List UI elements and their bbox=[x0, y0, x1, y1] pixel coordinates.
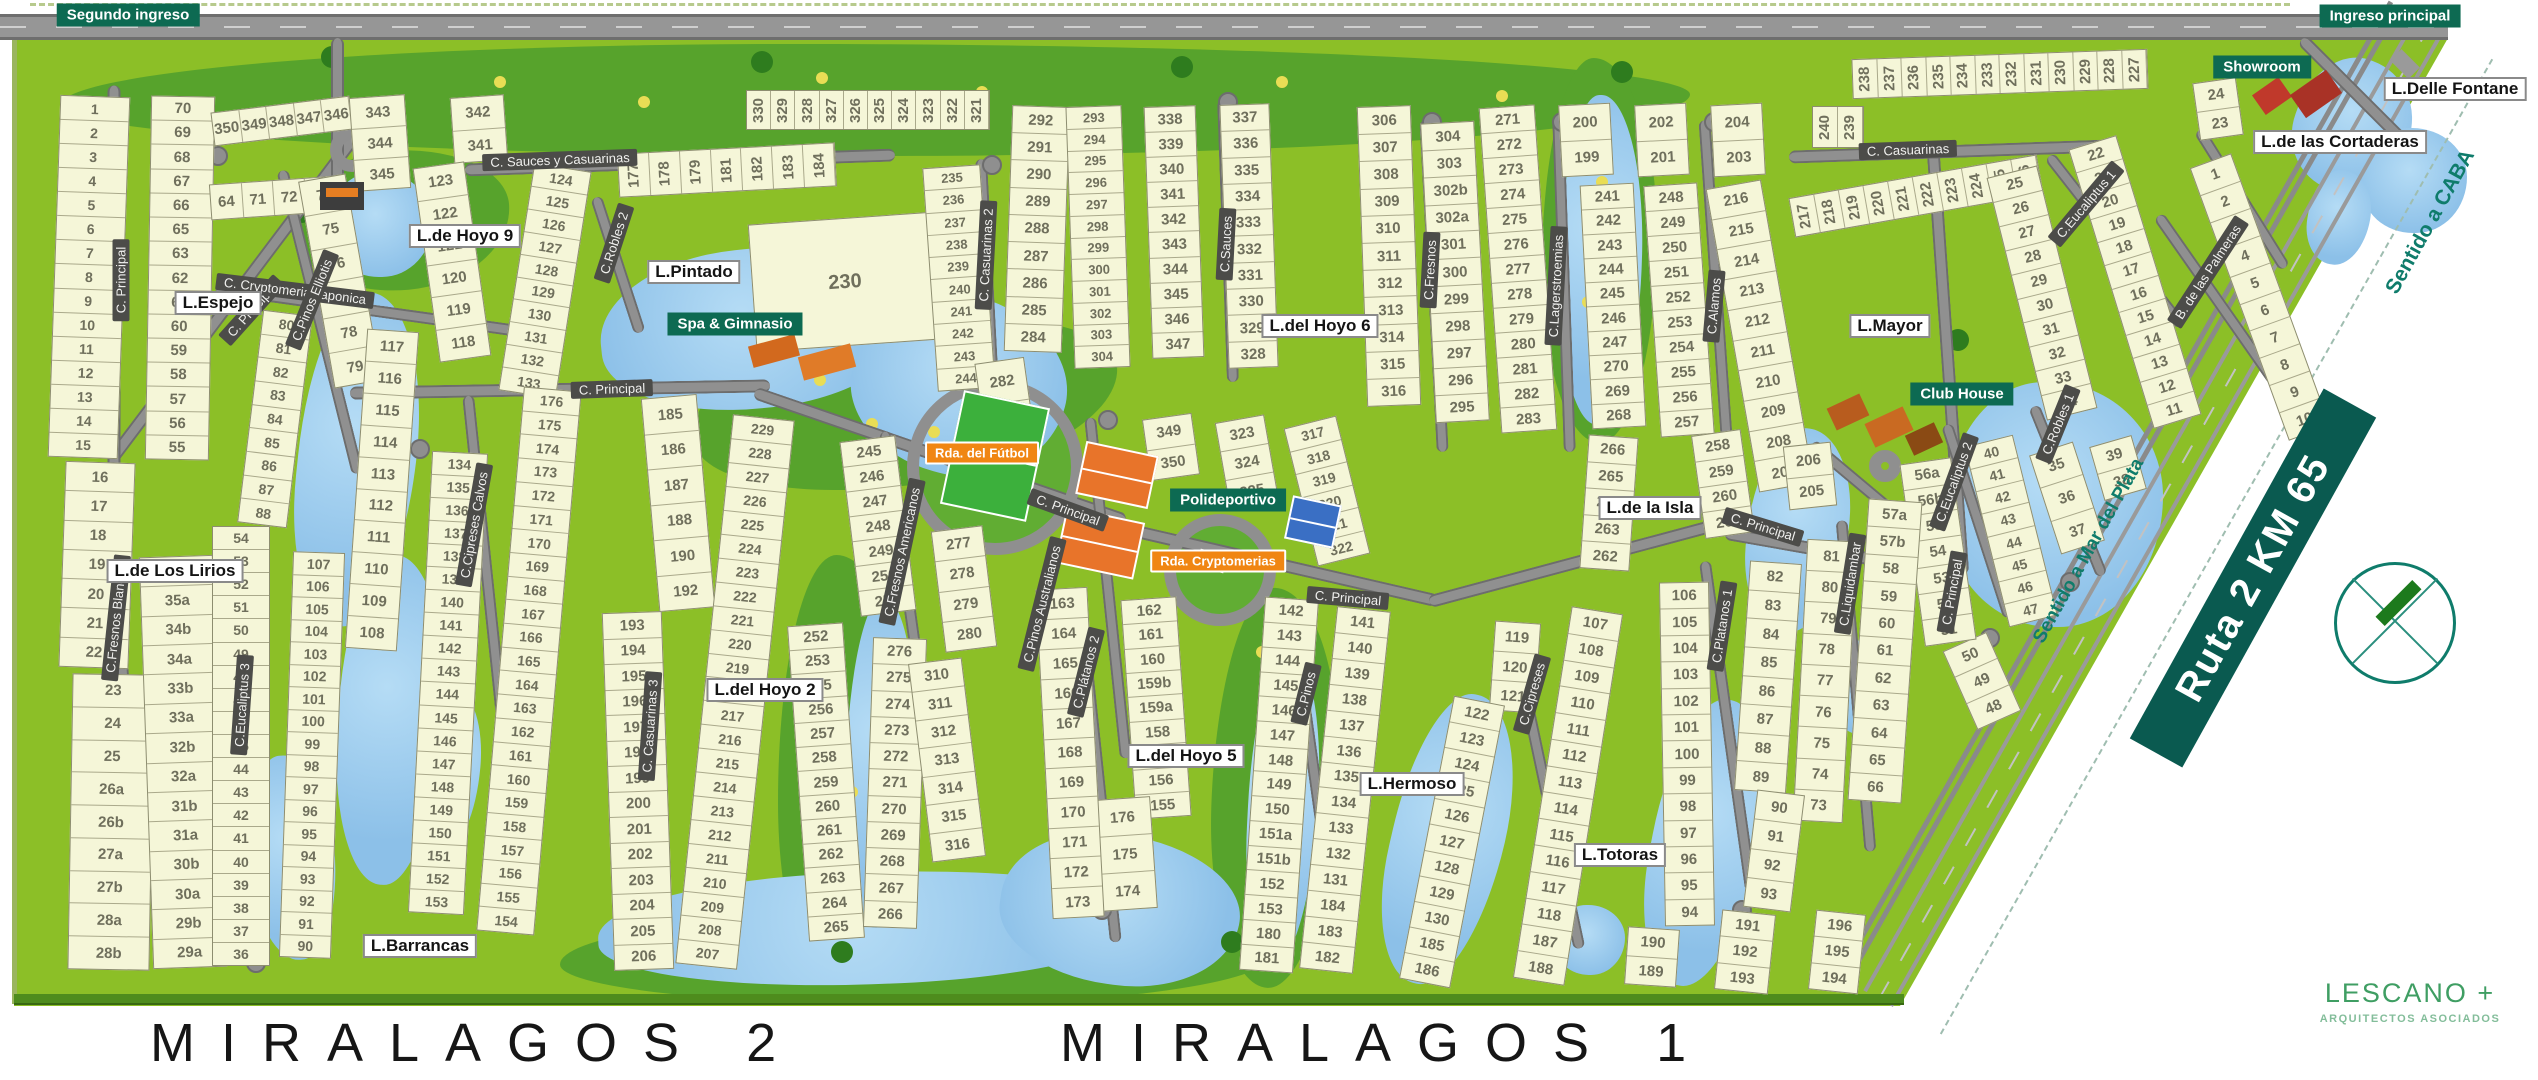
lot-262: 262 bbox=[1580, 542, 1630, 571]
lot-70: 70 bbox=[152, 96, 214, 121]
lot-142: 142 bbox=[422, 636, 477, 662]
lot-62: 62 bbox=[1856, 663, 1910, 694]
lot-143: 143 bbox=[1263, 622, 1317, 650]
lot-203: 203 bbox=[1713, 139, 1765, 176]
map-bottom-boundary bbox=[14, 994, 1904, 1005]
lot-270: 270 bbox=[1590, 354, 1643, 381]
lot-283: 283 bbox=[1501, 405, 1557, 433]
lake-label: L.Mayor bbox=[1849, 314, 1930, 338]
lot-109: 109 bbox=[348, 584, 400, 619]
lot-strip: 1931941951961971981992002012022032042052… bbox=[602, 611, 674, 971]
lot-324: 324 bbox=[892, 91, 916, 129]
poi-badge: Ingreso principal bbox=[2320, 5, 2461, 28]
lot-168: 168 bbox=[1044, 737, 1095, 769]
lot-286: 286 bbox=[1007, 269, 1064, 298]
lot-strip: 106105104103102101100999897969594 bbox=[1659, 582, 1715, 927]
lot-347: 347 bbox=[1153, 332, 1204, 358]
lot-279: 279 bbox=[1494, 305, 1550, 334]
lot-350: 350 bbox=[212, 110, 243, 145]
lot-100: 100 bbox=[288, 710, 339, 734]
lot-309: 309 bbox=[1361, 188, 1414, 217]
lot-strip: 1071061051041031021011009998979695949392… bbox=[279, 551, 345, 959]
lot-62: 62 bbox=[149, 266, 211, 291]
lot-114: 114 bbox=[359, 425, 411, 460]
lot-183: 183 bbox=[772, 145, 805, 189]
lot-171: 171 bbox=[1049, 827, 1100, 859]
lot-343: 343 bbox=[350, 95, 406, 130]
compass-icon bbox=[2334, 562, 2456, 684]
lot-strip: 8283848586878889 bbox=[1734, 560, 1802, 793]
lot-338: 338 bbox=[1145, 106, 1196, 133]
lot-348: 348 bbox=[266, 103, 297, 138]
lot-94: 94 bbox=[1666, 899, 1714, 925]
map-left-boundary bbox=[12, 38, 17, 1004]
lot-228: 228 bbox=[2097, 51, 2123, 90]
lot-82: 82 bbox=[1749, 562, 1801, 594]
lot-149: 149 bbox=[414, 797, 469, 823]
lot-strip: 202201 bbox=[1634, 103, 1690, 178]
lot-202: 202 bbox=[611, 841, 670, 869]
lot-68: 68 bbox=[151, 145, 213, 170]
lot-115: 115 bbox=[361, 393, 413, 428]
lot-59: 59 bbox=[148, 338, 210, 363]
lot-strip: 306307308309310311312313314315316 bbox=[1357, 105, 1421, 407]
lot-27a: 27a bbox=[70, 838, 151, 872]
poi-badge: Polideportivo bbox=[1170, 489, 1286, 512]
amenity-bld bbox=[1827, 394, 1870, 431]
lot-102: 102 bbox=[1662, 688, 1710, 715]
golf-bunker bbox=[638, 96, 650, 108]
lot-55: 55 bbox=[146, 435, 208, 459]
lot-268: 268 bbox=[866, 848, 919, 876]
lot-315: 315 bbox=[1366, 351, 1419, 380]
lot-330: 330 bbox=[747, 91, 771, 129]
lot-87: 87 bbox=[1739, 704, 1791, 736]
lot-271: 271 bbox=[1480, 106, 1536, 135]
lot-84: 84 bbox=[1745, 619, 1797, 651]
lot-152: 152 bbox=[410, 866, 465, 892]
lot-102: 102 bbox=[289, 665, 340, 689]
lot-60: 60 bbox=[1860, 609, 1914, 640]
poi-badge: Segundo ingreso bbox=[57, 4, 200, 27]
lot-342: 342 bbox=[1148, 207, 1199, 234]
lot-303: 303 bbox=[1423, 149, 1476, 179]
lot-207: 207 bbox=[676, 939, 738, 968]
lot-302: 302 bbox=[1073, 302, 1128, 326]
lot-103: 103 bbox=[290, 642, 341, 666]
lot-56: 56 bbox=[146, 411, 208, 436]
lot-255: 255 bbox=[1657, 359, 1711, 388]
lot-strip: 293294295296297298299300301302303304 bbox=[1065, 105, 1130, 369]
lot-10: 10 bbox=[53, 312, 122, 338]
lot-189: 189 bbox=[1625, 956, 1677, 987]
lot-93: 93 bbox=[1744, 878, 1793, 912]
lot-190: 190 bbox=[1627, 927, 1679, 959]
lot-328: 328 bbox=[795, 91, 819, 129]
lot-38: 38 bbox=[213, 897, 269, 920]
lot-310: 310 bbox=[1362, 215, 1415, 244]
lot-60: 60 bbox=[148, 314, 210, 339]
lot-146: 146 bbox=[417, 728, 472, 754]
lot-342: 342 bbox=[451, 95, 505, 131]
lot-140: 140 bbox=[425, 590, 480, 616]
lescano-subtitle: ARQUITECTOS ASOCIADOS bbox=[2310, 1013, 2510, 1025]
lake-label: L.del Hoyo 6 bbox=[1261, 314, 1378, 338]
lot-257: 257 bbox=[1660, 409, 1714, 437]
lot-119: 119 bbox=[1494, 622, 1540, 655]
lot-307: 307 bbox=[1359, 133, 1412, 162]
road-centerline bbox=[0, 26, 2448, 28]
lot-186: 186 bbox=[645, 430, 702, 470]
lot-143: 143 bbox=[421, 659, 476, 685]
lot-33a: 33a bbox=[145, 703, 218, 735]
lot-206: 206 bbox=[1784, 443, 1833, 479]
lot-strip: 292291290289288287286285284 bbox=[1004, 105, 1071, 353]
lot-76: 76 bbox=[1799, 696, 1849, 730]
lot-108: 108 bbox=[346, 616, 398, 650]
title-miralagos-1: MIRALAGOS 1 bbox=[1060, 1012, 1712, 1074]
cul-de-sac bbox=[410, 439, 430, 459]
lot-193: 193 bbox=[1715, 963, 1769, 994]
lot-35a: 35a bbox=[141, 585, 214, 617]
lot-230: 230 bbox=[2048, 52, 2074, 91]
lot-57b: 57b bbox=[1866, 527, 1920, 558]
lot-290: 290 bbox=[1010, 161, 1067, 190]
lot-1: 1 bbox=[60, 96, 129, 122]
lot-242: 242 bbox=[1582, 208, 1635, 235]
lot-199: 199 bbox=[1561, 139, 1613, 176]
lake-label: L.Barrancas bbox=[363, 934, 477, 958]
lot-40: 40 bbox=[213, 851, 269, 874]
lot-169: 169 bbox=[1046, 767, 1097, 799]
lot-301: 301 bbox=[1073, 280, 1128, 304]
lot-61: 61 bbox=[1858, 636, 1912, 667]
lot-34b: 34b bbox=[142, 615, 215, 647]
lot-116: 116 bbox=[364, 361, 416, 396]
lot-266: 266 bbox=[864, 901, 917, 928]
lot-296: 296 bbox=[1069, 171, 1124, 195]
lot-200: 200 bbox=[1559, 104, 1611, 142]
lot-16: 16 bbox=[66, 462, 135, 494]
lake-label: L.Pintado bbox=[647, 260, 740, 284]
lot-244: 244 bbox=[1585, 257, 1638, 284]
lot-328: 328 bbox=[1229, 341, 1278, 368]
lot-144: 144 bbox=[420, 682, 475, 708]
lot-236: 236 bbox=[1901, 58, 1927, 97]
lot-118: 118 bbox=[436, 323, 490, 361]
lot-12: 12 bbox=[51, 360, 120, 386]
lot-86: 86 bbox=[1741, 676, 1793, 708]
lot-strip: 240239 bbox=[1812, 106, 1864, 148]
lot-150: 150 bbox=[413, 820, 468, 846]
lot-270: 270 bbox=[868, 796, 921, 824]
lot-39: 39 bbox=[213, 874, 269, 897]
lot-249: 249 bbox=[1646, 209, 1700, 238]
lot-150: 150 bbox=[1250, 796, 1304, 824]
lot-231: 231 bbox=[2024, 53, 2050, 92]
lot-304: 304 bbox=[1421, 122, 1474, 152]
lot-265: 265 bbox=[1586, 462, 1636, 492]
lot-13: 13 bbox=[50, 384, 119, 410]
lot-181: 181 bbox=[1240, 945, 1294, 972]
lot-110: 110 bbox=[350, 552, 402, 587]
lot-11: 11 bbox=[52, 336, 121, 362]
amenity-bld bbox=[1864, 406, 1913, 447]
lot-54: 54 bbox=[213, 527, 269, 550]
lot-strip: 124125126127128129130131132133 bbox=[498, 163, 591, 399]
lake-label: L.de la Isla bbox=[1599, 496, 1702, 520]
lot-105: 105 bbox=[292, 597, 343, 621]
lot-269: 269 bbox=[867, 822, 920, 850]
lot-202: 202 bbox=[1635, 104, 1687, 142]
lot-33b: 33b bbox=[144, 673, 217, 705]
lot-24: 24 bbox=[72, 707, 153, 741]
lot-strip: 200199 bbox=[1558, 103, 1614, 178]
lot-58: 58 bbox=[147, 363, 209, 388]
lot-247: 247 bbox=[1588, 329, 1641, 356]
lot-330: 330 bbox=[1227, 288, 1276, 316]
lot-298: 298 bbox=[1070, 215, 1125, 239]
lot-321: 321 bbox=[965, 91, 989, 129]
lot-67: 67 bbox=[150, 169, 212, 194]
lot-289: 289 bbox=[1009, 188, 1066, 217]
lot-238: 238 bbox=[1852, 59, 1878, 98]
lake-label: L.de Hoyo 9 bbox=[409, 224, 521, 248]
tree-icon bbox=[1171, 56, 1193, 78]
lot-149: 149 bbox=[1252, 771, 1306, 799]
lot-349: 349 bbox=[239, 107, 270, 142]
lot-42: 42 bbox=[213, 804, 269, 827]
lot-306: 306 bbox=[1358, 106, 1411, 135]
lot-74: 74 bbox=[1795, 758, 1845, 792]
lot-298: 298 bbox=[1431, 312, 1484, 342]
lot-274: 274 bbox=[1485, 180, 1541, 209]
lot-25: 25 bbox=[72, 740, 153, 774]
lot-288: 288 bbox=[1009, 215, 1066, 244]
cul-de-sac bbox=[982, 155, 1002, 175]
lot-106: 106 bbox=[292, 575, 343, 599]
amenity-bld bbox=[326, 188, 358, 197]
lot-256: 256 bbox=[1658, 384, 1712, 413]
lot-96: 96 bbox=[1665, 846, 1713, 873]
lot-105: 105 bbox=[1660, 609, 1708, 636]
lot-205: 205 bbox=[1787, 474, 1836, 509]
lot-254: 254 bbox=[1655, 334, 1709, 363]
lot-299: 299 bbox=[1071, 237, 1126, 261]
lot-302b: 302b bbox=[1424, 176, 1477, 206]
lot-266: 266 bbox=[1588, 435, 1638, 465]
lot-3: 3 bbox=[59, 144, 128, 170]
lot-28b: 28b bbox=[68, 937, 149, 970]
lot-229: 229 bbox=[2073, 52, 2099, 91]
lot-71: 71 bbox=[241, 181, 275, 217]
lot-251: 251 bbox=[1650, 259, 1704, 288]
lot-184: 184 bbox=[803, 143, 836, 187]
poi-badge: Club House bbox=[1910, 383, 2013, 406]
lot-strip: 162161160159b159a158157156155 bbox=[1120, 596, 1191, 819]
poi-badge: Showroom bbox=[2213, 56, 2311, 79]
lake-label: L.de las Cortaderas bbox=[2253, 130, 2427, 154]
golf-bunker bbox=[816, 72, 828, 84]
lot-88: 88 bbox=[1737, 733, 1789, 765]
lot-97: 97 bbox=[1664, 820, 1712, 847]
lot-344: 344 bbox=[352, 126, 408, 161]
lot-295: 295 bbox=[1435, 393, 1488, 422]
lake-label: L.Hermoso bbox=[1360, 772, 1465, 796]
lot-5: 5 bbox=[57, 192, 126, 218]
lot-239: 239 bbox=[1838, 107, 1863, 147]
lot-111: 111 bbox=[353, 521, 405, 556]
lot-147: 147 bbox=[1256, 722, 1310, 750]
lot-78: 78 bbox=[1802, 633, 1852, 667]
lot-66: 66 bbox=[1849, 772, 1903, 802]
lot-63: 63 bbox=[149, 242, 211, 267]
lot-57a: 57a bbox=[1868, 500, 1922, 531]
lot-182: 182 bbox=[1300, 942, 1354, 972]
lot-99: 99 bbox=[287, 732, 338, 756]
lot-174: 174 bbox=[1098, 871, 1156, 911]
lot-75: 75 bbox=[1797, 727, 1847, 761]
lot-strip: 271272273274275276277278279280281282283 bbox=[1479, 104, 1558, 433]
lot-59: 59 bbox=[1862, 581, 1916, 612]
lot-106: 106 bbox=[1660, 583, 1708, 610]
lot-273: 273 bbox=[1483, 155, 1539, 184]
lot-65: 65 bbox=[1850, 745, 1904, 776]
lot-172: 172 bbox=[1051, 857, 1102, 889]
lot-339: 339 bbox=[1146, 131, 1197, 158]
lot-193: 193 bbox=[603, 612, 662, 640]
roundabout bbox=[1869, 450, 1901, 482]
lot-95: 95 bbox=[1665, 873, 1713, 900]
lot-65: 65 bbox=[150, 217, 212, 242]
lot-26a: 26a bbox=[71, 773, 152, 807]
lot-232: 232 bbox=[1999, 54, 2025, 93]
lake-label: L.del Hoyo 5 bbox=[1127, 744, 1244, 768]
lot-188: 188 bbox=[651, 501, 708, 541]
lot-179: 179 bbox=[680, 150, 713, 194]
lot-176: 176 bbox=[1093, 797, 1151, 838]
lot-241: 241 bbox=[1581, 184, 1634, 211]
lot-154: 154 bbox=[477, 907, 535, 934]
collector-road-top bbox=[0, 14, 2448, 40]
lot-66: 66 bbox=[150, 193, 212, 218]
lot-294: 294 bbox=[1067, 128, 1122, 152]
lot-346: 346 bbox=[321, 97, 352, 132]
lot-36: 36 bbox=[213, 943, 269, 965]
lot-103: 103 bbox=[1661, 662, 1709, 689]
lot-strip: 338339340341342343344345346347 bbox=[1144, 105, 1205, 359]
lot-237: 237 bbox=[1877, 58, 1903, 97]
golf-bunker bbox=[1276, 76, 1288, 88]
lot-340: 340 bbox=[1146, 156, 1197, 183]
lot-90: 90 bbox=[280, 935, 331, 958]
lot-280: 280 bbox=[1495, 330, 1551, 359]
title-miralagos-2: MIRALAGOS 2 bbox=[150, 1012, 802, 1074]
lot-44: 44 bbox=[213, 758, 269, 781]
lot-200: 200 bbox=[609, 790, 668, 818]
lot-31b: 31b bbox=[148, 791, 221, 823]
lot-57: 57 bbox=[147, 387, 209, 412]
lot-173: 173 bbox=[1052, 887, 1103, 918]
lot-268: 268 bbox=[1592, 402, 1645, 428]
lot-240: 240 bbox=[1813, 107, 1838, 147]
lot-15: 15 bbox=[49, 433, 118, 458]
lot-281: 281 bbox=[1497, 355, 1553, 384]
lot-32b: 32b bbox=[146, 732, 219, 764]
lot-293: 293 bbox=[1066, 106, 1121, 130]
lot-141: 141 bbox=[423, 613, 478, 639]
lot-346: 346 bbox=[1152, 307, 1203, 334]
lot-299: 299 bbox=[1430, 285, 1483, 315]
lot-185: 185 bbox=[642, 395, 699, 435]
lot-117: 117 bbox=[366, 330, 418, 365]
lot-43: 43 bbox=[213, 781, 269, 804]
lot-strip: 206205 bbox=[1783, 442, 1837, 511]
tree-icon bbox=[831, 941, 853, 963]
street-label: C. Principal bbox=[113, 239, 130, 321]
map-border-dashed bbox=[30, 3, 2290, 6]
lot-297: 297 bbox=[1433, 339, 1486, 369]
lot-341: 341 bbox=[1147, 181, 1198, 208]
court-line bbox=[1290, 517, 1335, 529]
lot-2: 2 bbox=[60, 120, 129, 146]
lot-343: 343 bbox=[1149, 232, 1200, 259]
lot-14: 14 bbox=[50, 409, 119, 435]
lot-194: 194 bbox=[1809, 963, 1859, 993]
lot-326: 326 bbox=[844, 91, 868, 129]
lake-label: L.Totoras bbox=[1574, 843, 1666, 867]
lot-276: 276 bbox=[1488, 230, 1544, 259]
lot-28a: 28a bbox=[69, 904, 150, 938]
tree-icon bbox=[1611, 61, 1633, 83]
lot-344: 344 bbox=[1150, 257, 1201, 284]
lot-280: 280 bbox=[943, 616, 996, 651]
street-label: C. Casuarinas bbox=[1859, 140, 1958, 160]
lake-label: L.de Los Lirios bbox=[107, 559, 244, 583]
lot-153: 153 bbox=[1243, 895, 1297, 923]
lot-269: 269 bbox=[1591, 378, 1644, 405]
lot-64: 64 bbox=[210, 183, 244, 219]
lot-296: 296 bbox=[1434, 366, 1487, 396]
lot-271: 271 bbox=[869, 769, 922, 797]
lot-201: 201 bbox=[610, 816, 669, 844]
lot-243: 243 bbox=[1583, 232, 1636, 259]
lot-203: 203 bbox=[612, 867, 671, 895]
lot-151b: 151b bbox=[1247, 846, 1301, 874]
lot-250: 250 bbox=[1648, 234, 1702, 263]
lot-101: 101 bbox=[1662, 715, 1710, 742]
lot-347: 347 bbox=[294, 100, 325, 135]
lot-282: 282 bbox=[1499, 380, 1555, 409]
lake-label: L.Espejo bbox=[175, 291, 262, 315]
lot-267: 267 bbox=[865, 874, 918, 902]
lot-96: 96 bbox=[285, 800, 336, 824]
lot-83: 83 bbox=[1747, 590, 1799, 622]
lot-93: 93 bbox=[282, 867, 333, 891]
lake-label: L.del Hoyo 2 bbox=[706, 678, 823, 702]
lot-206: 206 bbox=[614, 943, 673, 970]
lot-300: 300 bbox=[1072, 258, 1127, 282]
lot-strip: 706968676665636261605958575655 bbox=[145, 95, 215, 460]
court-line bbox=[1062, 535, 1137, 553]
roundabout-badge: Rda. del Fútbol bbox=[925, 442, 1039, 465]
lot-strip: 343344345 bbox=[349, 94, 411, 192]
lot-152: 152 bbox=[1245, 870, 1299, 898]
lot-302a: 302a bbox=[1426, 203, 1479, 233]
lot-95: 95 bbox=[284, 822, 335, 846]
lot-295: 295 bbox=[1068, 150, 1123, 174]
lot-92: 92 bbox=[282, 890, 333, 914]
